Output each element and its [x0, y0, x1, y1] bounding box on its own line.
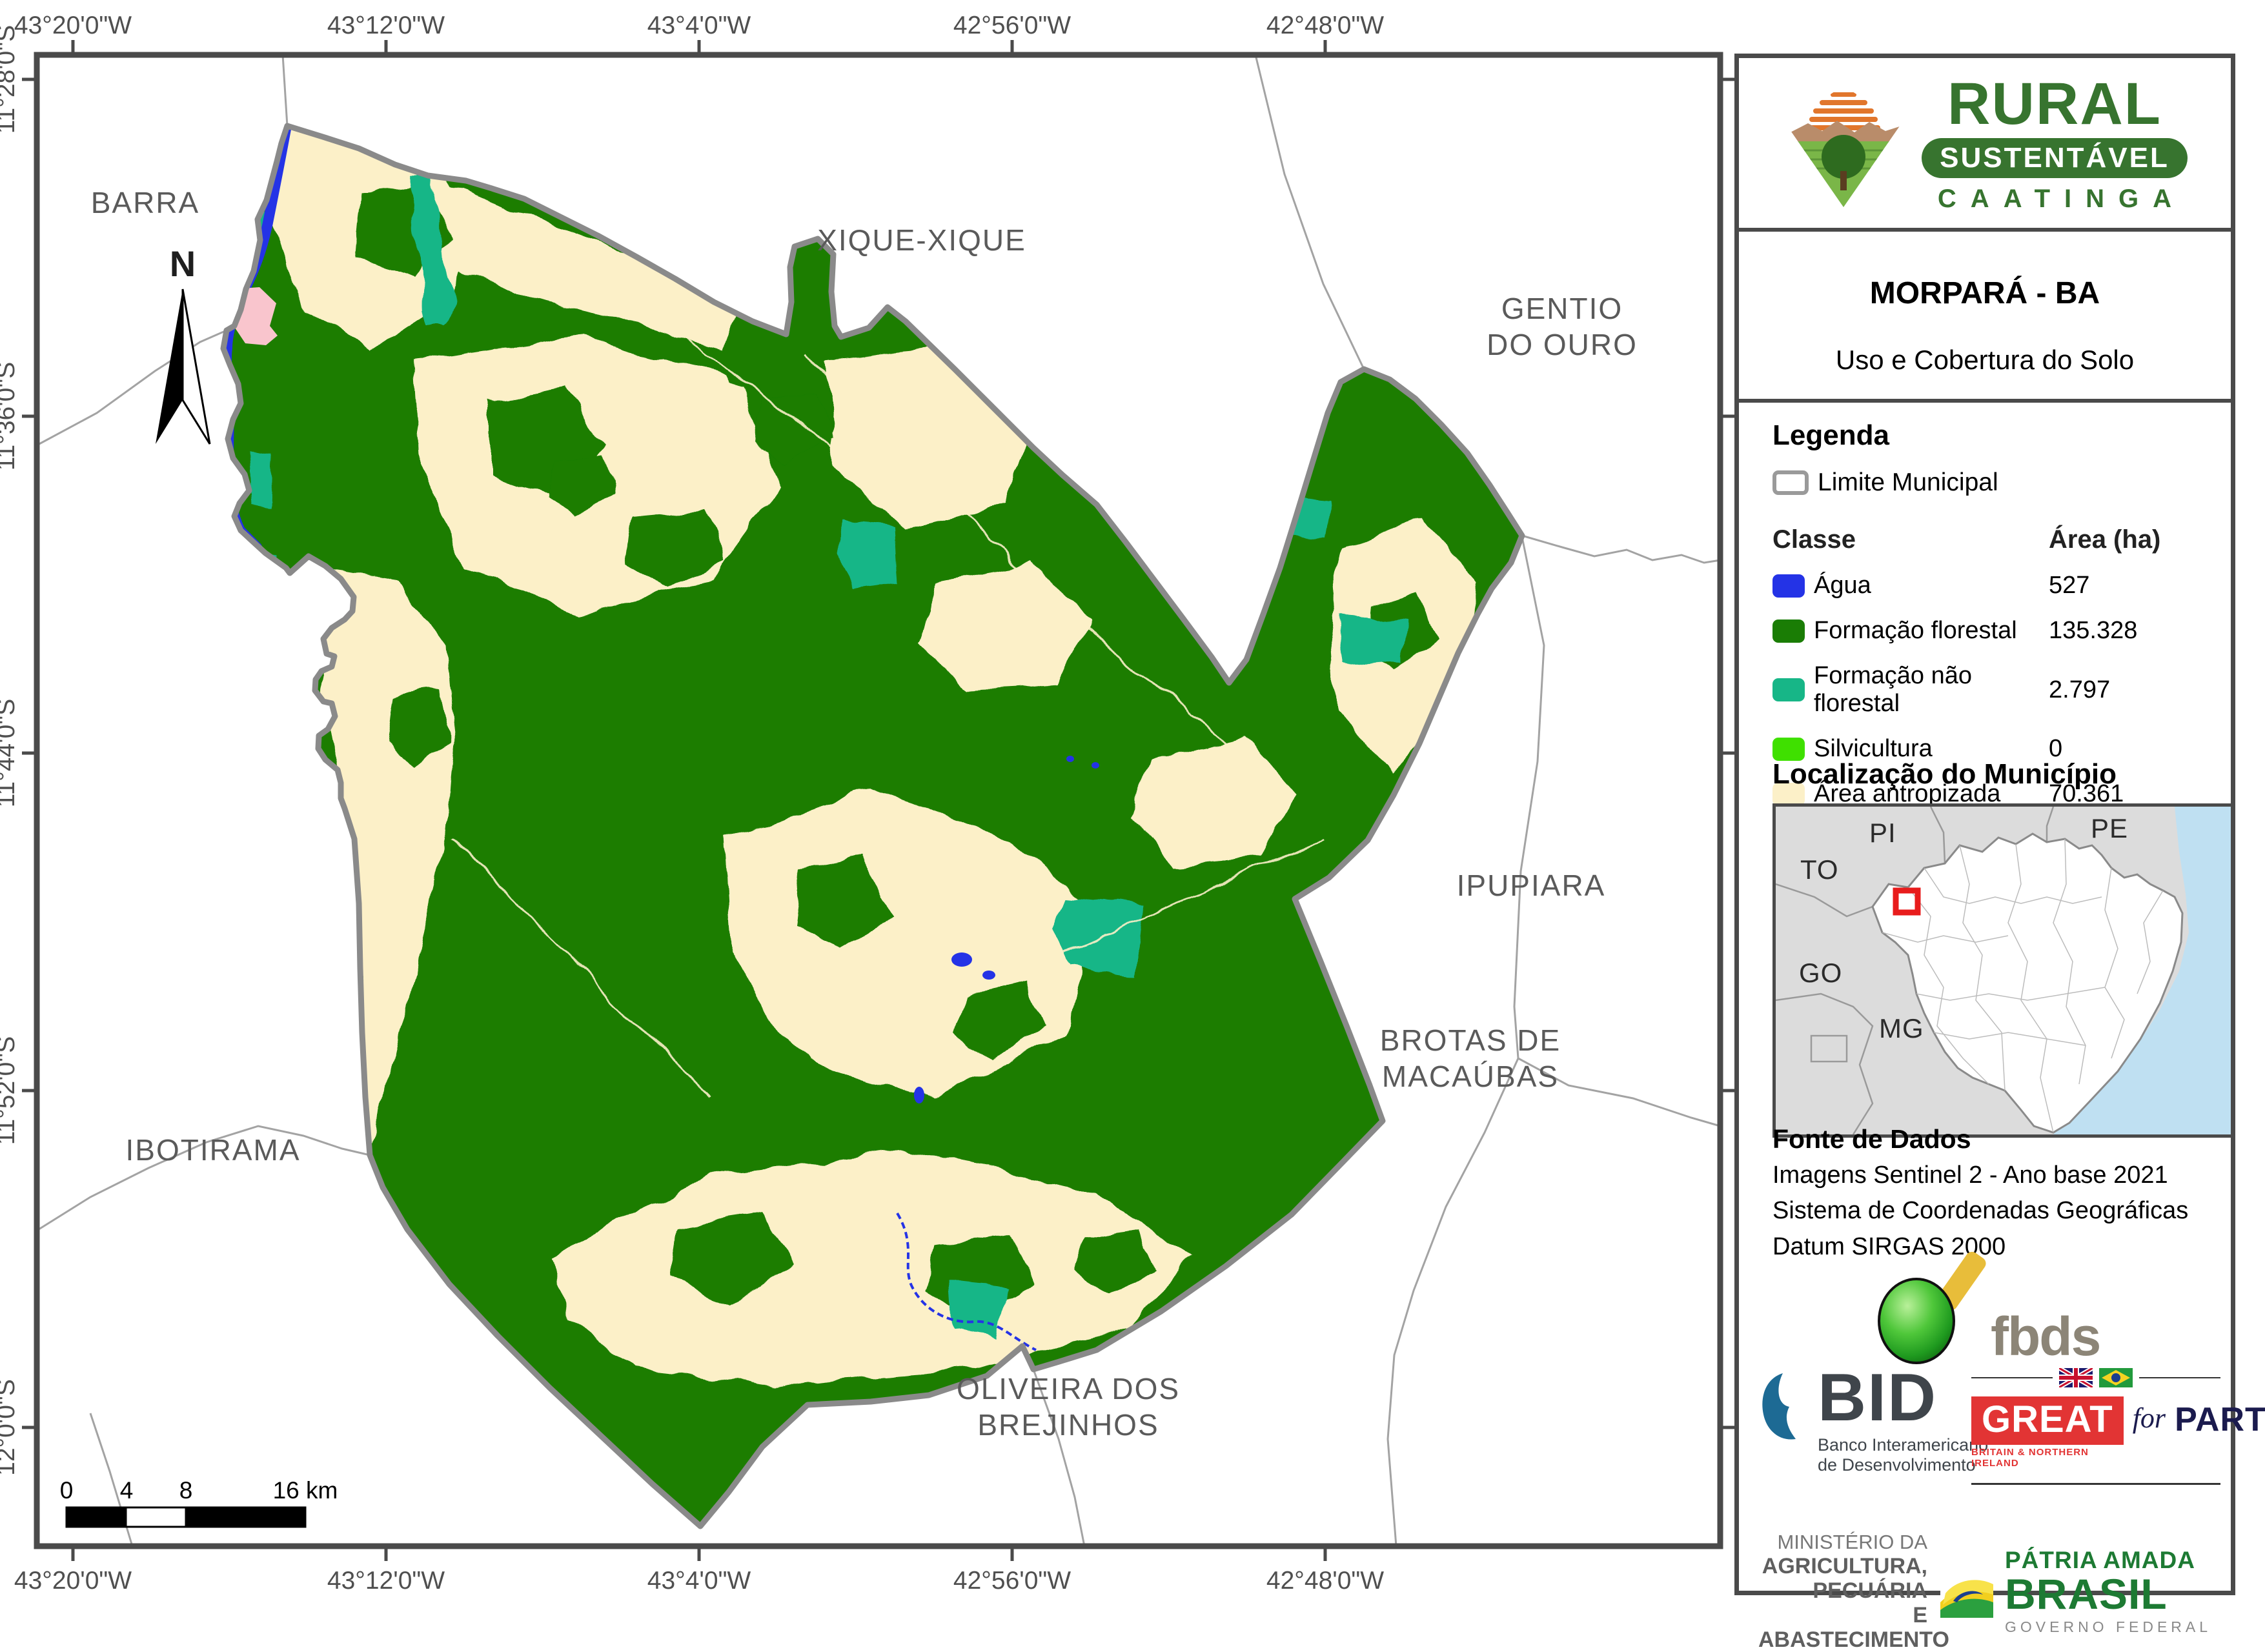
ministry-line-1: MINISTÉRIO DA: [1758, 1531, 1927, 1554]
lon-label-bot-3: 42°56'0"W: [953, 1567, 1071, 1595]
government-logos: MINISTÉRIO DA AGRICULTURA, PECUÁRIA E AB…: [1758, 1531, 2220, 1652]
ministry-line-2: AGRICULTURA, PECUÁRIA: [1758, 1554, 1927, 1603]
inset-label-to: TO: [1800, 854, 1839, 885]
svg-text:8: 8: [179, 1477, 193, 1504]
label-oliveira-2: BREJINHOS: [977, 1408, 1159, 1442]
lon-label-bot-0: 43°20'0"W: [14, 1567, 132, 1595]
legend-row-formacao-nao-florestal: Formação não florestal 2.797: [1772, 662, 2211, 718]
fbds-logo: fbds: [1868, 1249, 2126, 1365]
legend-col-area: Área (ha): [2049, 525, 2160, 554]
label-ibotirama: IBOTIRAMA: [125, 1133, 300, 1167]
fonte-heading: Fonte de Dados: [1772, 1124, 2218, 1154]
lat-label-4: 12°0'0"S: [0, 1379, 20, 1476]
location-block: Localização do Município: [1772, 758, 2218, 1138]
ministry-text: MINISTÉRIO DA AGRICULTURA, PECUÁRIA E AB…: [1758, 1531, 1927, 1652]
label-brotas-2: MACAÚBAS: [1382, 1060, 1559, 1093]
swatch-formacao-florestal: [1772, 619, 1805, 643]
svg-text:N: N: [170, 243, 196, 284]
label-xique-xique: XIQUE-XIQUE: [817, 223, 1026, 257]
lon-label-bot-2: 43°4'0"W: [647, 1567, 751, 1595]
lon-label-bot-1: 43°12'0"W: [327, 1567, 445, 1595]
label-barra: BARRA: [91, 186, 199, 219]
legend-col-class: Classe: [1772, 525, 2049, 554]
swatch-formacao-nao-florestal: [1772, 678, 1805, 701]
limite-municipal-swatch: [1772, 470, 1809, 495]
fonte-line-1: Imagens Sentinel 2 - Ano base 2021: [1772, 1160, 2218, 1190]
page-title: MORPARÁ - BA: [1739, 276, 2231, 311]
bid-sub-1: Banco Interamericano: [1818, 1435, 1988, 1455]
bid-logo: BID Banco Interamericano de Desenvolvime…: [1758, 1368, 1988, 1475]
brasil-government-logo-icon: [1940, 1565, 1993, 1618]
partner-logos: BID Banco Interamericano de Desenvolvime…: [1758, 1368, 2220, 1562]
great-word: GREAT: [1971, 1396, 2124, 1445]
fonte-line-2: Sistema de Coordenadas Geográficas: [1772, 1196, 2218, 1225]
brazil-flag-icon: [2099, 1368, 2133, 1387]
lat-label-0: 11°28'0"S: [0, 25, 20, 134]
svg-text:16 km: 16 km: [273, 1477, 338, 1504]
location-heading: Localização do Município: [1772, 758, 2218, 791]
rural-sustentavel-logo-icon: [1782, 81, 1905, 210]
swatch-agua: [1772, 574, 1805, 598]
lat-label-1: 11°36'0"S: [0, 362, 20, 470]
patria-line-3: GOVERNO FEDERAL: [2005, 1618, 2211, 1636]
great-underline: [1971, 1483, 2220, 1485]
legend-row-agua: Água 527: [1772, 572, 2211, 599]
great-logo: GREAT BRITAIN & NORTHERN IRELAND for PAR…: [1971, 1368, 2220, 1485]
brand-block: RURAL SUSTENTÁVEL CAATINGA: [1739, 58, 2231, 232]
bid-sub-2: de Desenvolvimento: [1818, 1455, 1976, 1475]
lon-label-bot-4: 42°48'0"W: [1266, 1567, 1384, 1595]
ministry-line-3: E ABASTECIMENTO: [1758, 1603, 1927, 1652]
svg-text:4: 4: [120, 1477, 134, 1504]
title-block: MORPARÁ - BA Uso e Cobertura do Solo: [1739, 236, 2231, 401]
lat-label-3: 11°52'0"S: [0, 1036, 20, 1145]
location-inset-map: PI PE TO GO MG: [1772, 803, 2234, 1138]
limite-municipal-label: Limite Municipal: [1818, 468, 1998, 497]
main-map: BARRA XIQUE-XIQUE GENTIO DO OURO IPUPIAR…: [0, 0, 1772, 1601]
fbds-word: fbds: [1991, 1305, 2100, 1368]
inset-label-mg: MG: [1879, 1013, 1924, 1043]
patria-line-2: BRASIL: [2005, 1574, 2211, 1615]
swatch-silvicultura: [1772, 738, 1805, 761]
lon-label-top-3: 42°56'0"W: [953, 12, 1071, 39]
label-brotas-1: BROTAS DE: [1380, 1023, 1561, 1057]
great-sub: BRITAIN & NORTHERN IRELAND: [1971, 1447, 2124, 1469]
legend-row-formacao-florestal: Formação florestal 135.328: [1772, 617, 2211, 645]
page-subtitle: Uso e Cobertura do Solo: [1739, 345, 2231, 376]
label-ipupiara: IPUPIARA: [1457, 869, 1606, 902]
inset-label-pi: PI: [1869, 818, 1896, 848]
brand-line1: RURAL: [1947, 76, 2162, 132]
lon-label-top-1: 43°12'0"W: [327, 12, 445, 39]
legend-heading: Legenda: [1772, 419, 2211, 452]
lat-label-2: 11°44'0"S: [0, 699, 20, 807]
bid-logo-icon: [1758, 1372, 1810, 1444]
svg-text:0: 0: [60, 1477, 74, 1504]
great-partnership: PARTNERSHIP: [2175, 1400, 2265, 1439]
page: { "header": { "brand": {"line1": "RURAL"…: [0, 0, 2265, 1601]
sidebar: RURAL SUSTENTÁVEL CAATINGA MORPARÁ - BA …: [1734, 54, 2235, 1595]
lon-label-top-0: 43°20'0"W: [14, 12, 132, 39]
label-gentio-2: DO OURO: [1487, 328, 1638, 361]
patria-text: PÁTRIA AMADA BRASIL GOVERNO FEDERAL: [2005, 1547, 2211, 1636]
lon-label-top-4: 42°48'0"W: [1266, 12, 1384, 39]
label-gentio-1: GENTIO: [1501, 292, 1623, 325]
brand-line3: CAATINGA: [1938, 185, 2186, 214]
label-oliveira-1: OLIVEIRA DOS: [957, 1372, 1180, 1405]
great-for: for: [2133, 1402, 2166, 1435]
bid-word: BID: [1818, 1368, 1988, 1429]
inset-label-go: GO: [1799, 958, 1842, 988]
lon-label-top-2: 43°4'0"W: [647, 12, 751, 39]
inset-label-pe: PE: [2091, 813, 2128, 843]
data-source-block: Fonte de Dados Imagens Sentinel 2 - Ano …: [1772, 1124, 2218, 1262]
brand-line2: SUSTENTÁVEL: [1922, 138, 2188, 178]
uk-flag-icon: [2059, 1368, 2093, 1387]
